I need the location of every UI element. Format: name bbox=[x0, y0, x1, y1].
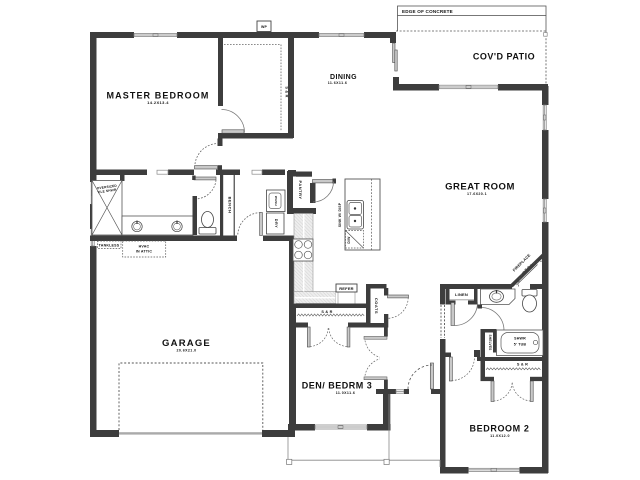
svg-text:BEDROOM 2: BEDROOM 2 bbox=[470, 424, 530, 434]
svg-text:MASTER BEDROOM: MASTER BEDROOM bbox=[107, 91, 210, 101]
svg-text:5' TUB: 5' TUB bbox=[514, 343, 527, 347]
svg-text:S & R: S & R bbox=[285, 86, 289, 97]
svg-text:S & R: S & R bbox=[321, 310, 332, 314]
svg-text:17.6X20.1: 17.6X20.1 bbox=[467, 192, 487, 196]
svg-text:TANKLESS: TANKLESS bbox=[99, 244, 120, 248]
svg-text:LINEN: LINEN bbox=[455, 292, 468, 297]
svg-text:11.0X11.6: 11.0X11.6 bbox=[336, 391, 356, 395]
svg-text:IN ATTIC: IN ATTIC bbox=[136, 250, 153, 254]
svg-text:WASH: WASH bbox=[274, 196, 278, 206]
svg-text:SHWR: SHWR bbox=[514, 337, 526, 341]
svg-text:14.2X13.4: 14.2X13.4 bbox=[147, 100, 169, 105]
svg-text:20.6X21.0: 20.6X21.0 bbox=[177, 349, 197, 353]
svg-text:EDGE OF CONCRETE: EDGE OF CONCRETE bbox=[402, 9, 453, 14]
svg-text:COATS: COATS bbox=[374, 298, 379, 314]
svg-text:SHELVES: SHELVES bbox=[488, 334, 492, 350]
svg-text:11.0X12.0: 11.0X12.0 bbox=[490, 434, 510, 438]
svg-text:COV'D PATIO: COV'D PATIO bbox=[473, 52, 535, 62]
svg-text:HVAC: HVAC bbox=[139, 245, 150, 249]
svg-text:11.6X11.6: 11.6X11.6 bbox=[328, 81, 348, 85]
svg-text:DEN/ BEDRM 3: DEN/ BEDRM 3 bbox=[302, 381, 373, 391]
svg-text:GARAGE: GARAGE bbox=[162, 338, 211, 349]
svg-text:REFER: REFER bbox=[339, 286, 354, 291]
svg-text:GREAT ROOM: GREAT ROOM bbox=[445, 182, 515, 193]
svg-text:S & R: S & R bbox=[517, 362, 528, 366]
svg-text:BENCH: BENCH bbox=[227, 197, 232, 214]
svg-text:WP: WP bbox=[261, 25, 268, 29]
svg-text:D/W: D/W bbox=[347, 236, 351, 244]
svg-text:PANTRY: PANTRY bbox=[298, 181, 303, 200]
svg-text:DRY: DRY bbox=[274, 219, 278, 228]
svg-text:SINK W/ DISP: SINK W/ DISP bbox=[338, 202, 342, 227]
